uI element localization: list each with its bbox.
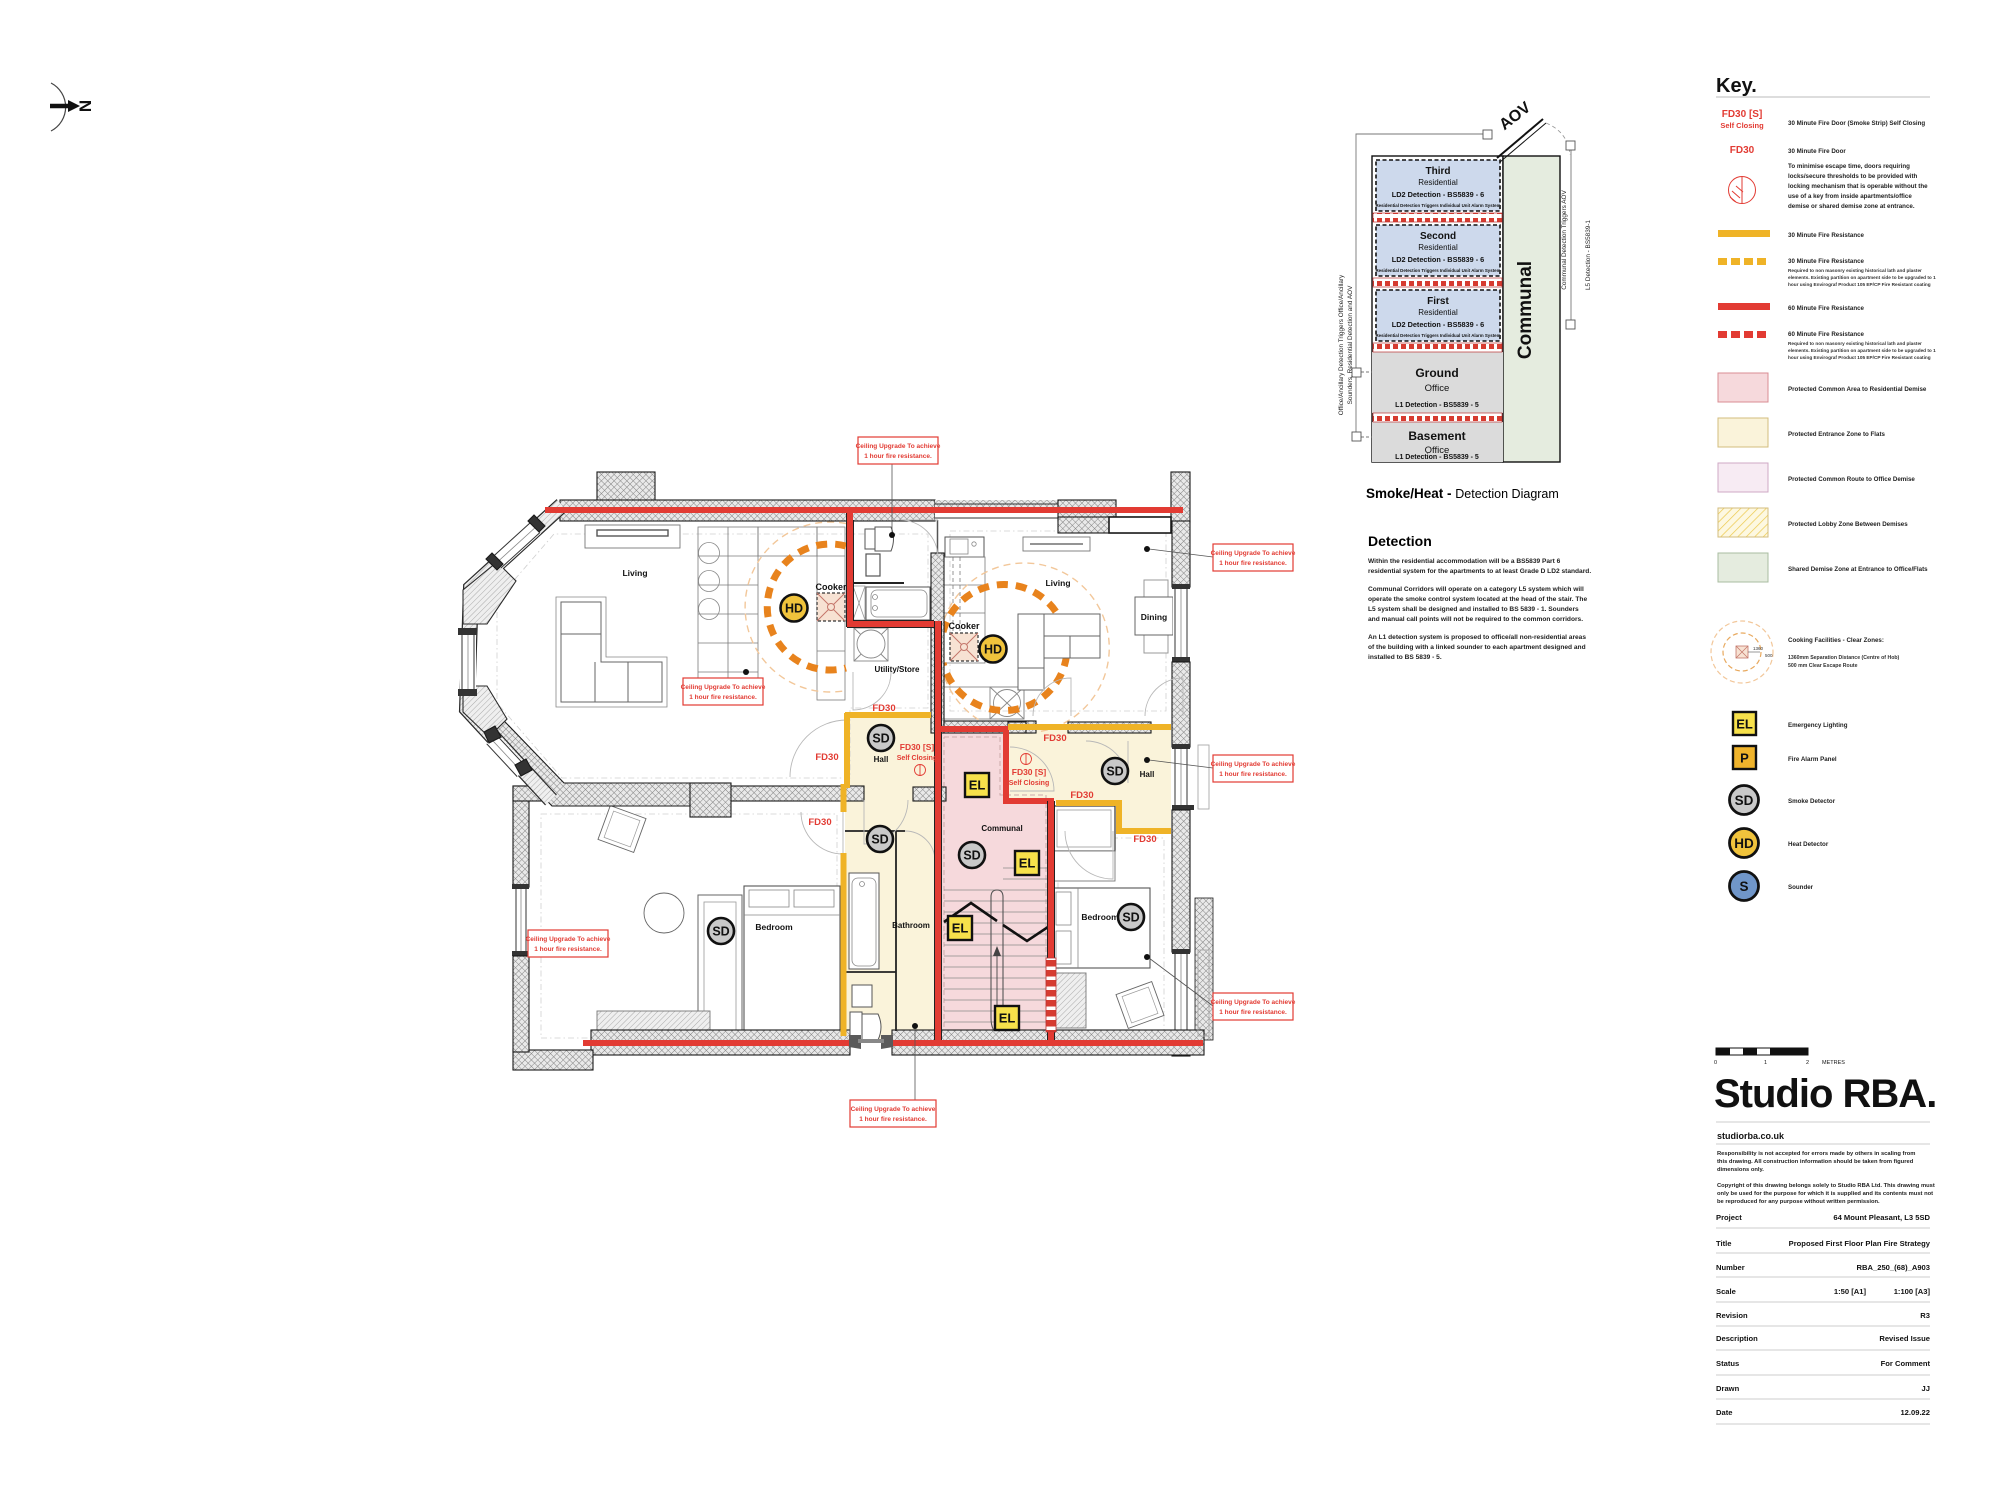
svg-text:Date: Date (1716, 1408, 1732, 1417)
svg-text:Title: Title (1716, 1239, 1731, 1248)
svg-text:1:50 [A1]: 1:50 [A1] (1834, 1287, 1867, 1296)
svg-text:Copyright of this drawing belo: Copyright of this drawing belongs solely… (1717, 1183, 1935, 1189)
svg-text:FD30 [S]: FD30 [S] (1722, 109, 1763, 120)
svg-text:500: 500 (1765, 653, 1773, 658)
svg-text:For Comment: For Comment (1881, 1359, 1931, 1368)
svg-text:Residential: Residential (1418, 178, 1458, 187)
svg-text:Residential Detection Triggers: Residential Detection Triggers Individua… (1376, 268, 1501, 273)
svg-text:Office: Office (1425, 383, 1450, 394)
svg-text:Number: Number (1716, 1263, 1745, 1272)
svg-text:Self Closing: Self Closing (1720, 121, 1764, 130)
svg-text:2: 2 (1806, 1060, 1809, 1066)
svg-text:FD30: FD30 (872, 703, 895, 714)
svg-text:SD: SD (963, 849, 980, 863)
svg-text:only be used for the purpose f: only be used for the purpose for which i… (1717, 1191, 1933, 1197)
svg-text:N: N (76, 100, 95, 112)
svg-text:Sounders, Residential Detectio: Sounders, Residential Detection and AOV (1347, 285, 1354, 404)
svg-text:Ground: Ground (1415, 366, 1458, 380)
svg-text:this drawing. All construction: this drawing. All construction informati… (1717, 1159, 1914, 1165)
svg-text:1 hour fire resistance.: 1 hour fire resistance. (689, 694, 757, 701)
svg-text:L1 Detection - BS5839 - 5: L1 Detection - BS5839 - 5 (1395, 454, 1479, 461)
svg-text:FD30: FD30 (808, 817, 831, 828)
svg-text:LD2 Detection - BS5839 - 6: LD2 Detection - BS5839 - 6 (1392, 320, 1484, 329)
svg-text:Bedroom: Bedroom (755, 922, 793, 932)
svg-text:Communal: Communal (1515, 261, 1536, 359)
svg-text:EL: EL (1736, 717, 1753, 732)
svg-text:Description: Description (1716, 1334, 1758, 1343)
svg-text:HD: HD (1734, 836, 1754, 851)
svg-text:Revision: Revision (1716, 1311, 1748, 1320)
svg-text:64 Mount Pleasant, L3 5SD: 64 Mount Pleasant, L3 5SD (1833, 1213, 1930, 1222)
svg-text:Detection: Detection (1368, 533, 1432, 549)
svg-text:residential system for the apa: residential system for the apartments to… (1368, 568, 1591, 575)
svg-text:Residential Detection Triggers: Residential Detection Triggers Individua… (1376, 333, 1501, 338)
svg-text:EL: EL (952, 921, 969, 936)
svg-text:L5 Detection - BS5839-1: L5 Detection - BS5839-1 (1585, 220, 1592, 290)
svg-text:1: 1 (1764, 1060, 1767, 1066)
svg-text:HD: HD (984, 643, 1002, 657)
svg-text:Self Closing: Self Closing (1009, 780, 1049, 787)
svg-text:FD30: FD30 (1070, 790, 1093, 801)
svg-text:L1 Detection - BS5839 - 5: L1 Detection - BS5839 - 5 (1395, 402, 1479, 409)
svg-text:FD30: FD30 (815, 752, 838, 763)
svg-text:Ceiling Upgrade To achieve: Ceiling Upgrade To achieve (526, 936, 611, 943)
svg-text:Office/Ancillary Detection Tri: Office/Ancillary Detection Triggers Offi… (1338, 274, 1345, 415)
svg-text:HD: HD (785, 602, 803, 616)
svg-text:RBA_250_(68)_A903: RBA_250_(68)_A903 (1857, 1263, 1930, 1272)
svg-text:1 hour fire resistance.: 1 hour fire resistance. (1219, 1009, 1287, 1016)
svg-text:Bedroom: Bedroom (1081, 912, 1119, 922)
svg-text:FD30: FD30 (1730, 145, 1755, 156)
svg-text:Residential Detection Triggers: Residential Detection Triggers Individua… (1376, 203, 1501, 208)
svg-text:Utility/Store: Utility/Store (875, 665, 920, 674)
svg-text:METRES: METRES (1822, 1060, 1845, 1066)
svg-text:L5 system shall be designed an: L5 system shall be designed and installe… (1368, 606, 1579, 613)
svg-text:Ceiling Upgrade To achieve: Ceiling Upgrade To achieve (1211, 999, 1296, 1006)
svg-text:LD2 Detection - BS5839 - 6: LD2 Detection - BS5839 - 6 (1392, 255, 1484, 264)
svg-text:1 hour fire resistance.: 1 hour fire resistance. (864, 453, 932, 460)
svg-text:Key.: Key. (1716, 75, 1757, 97)
svg-text:Shared Demise Zone at Entrance: Shared Demise Zone at Entrance to Office… (1788, 566, 1928, 573)
svg-text:SD: SD (1106, 765, 1123, 779)
svg-text:1 hour fire resistance.: 1 hour fire resistance. (1219, 560, 1287, 567)
svg-text:Studio RBA.: Studio RBA. (1714, 1072, 1936, 1116)
svg-text:Communal Detection Triggers AO: Communal Detection Triggers AOV (1561, 190, 1568, 290)
svg-text:Emergency Lighting: Emergency Lighting (1788, 722, 1848, 729)
svg-text:be reproduced for any purpose: be reproduced for any purpose without wr… (1717, 1199, 1880, 1205)
svg-text:30 Minute Fire Resistance: 30 Minute Fire Resistance (1788, 232, 1865, 239)
svg-text:Living: Living (622, 568, 647, 578)
svg-text:and manual call points will no: and manual call points will not be requi… (1368, 616, 1583, 623)
svg-text:Self Closing: Self Closing (897, 755, 937, 762)
svg-text:Project: Project (1716, 1213, 1742, 1222)
svg-text:FD30: FD30 (1133, 834, 1156, 845)
svg-text:Revised Issue: Revised Issue (1879, 1334, 1930, 1343)
svg-text:Ceiling Upgrade To achieve: Ceiling Upgrade To achieve (851, 1106, 936, 1113)
svg-text:elements. Existing partition o: elements. Existing partition on apartmen… (1788, 275, 1936, 280)
svg-text:Fire Alarm Panel: Fire Alarm Panel (1788, 756, 1837, 763)
svg-text:installed to BS 5839 - 5.: installed to BS 5839 - 5. (1368, 654, 1442, 661)
svg-text:1 hour fire resistance.: 1 hour fire resistance. (1219, 771, 1287, 778)
svg-text:Living: Living (1045, 578, 1070, 588)
svg-text:P: P (1740, 751, 1749, 766)
svg-text:Protected Entrance Zone to Fla: Protected Entrance Zone to Flats (1788, 431, 1886, 438)
svg-text:Residential: Residential (1418, 243, 1458, 252)
svg-text:Ceiling Upgrade To achieve: Ceiling Upgrade To achieve (1211, 761, 1296, 768)
svg-text:Hall: Hall (874, 755, 889, 764)
svg-text:60 Minute Fire Resistance: 60 Minute Fire Resistance (1788, 305, 1865, 312)
svg-text:FD30: FD30 (1043, 733, 1066, 744)
svg-text:Ceiling Upgrade To achieve: Ceiling Upgrade To achieve (1211, 550, 1296, 557)
svg-text:Ceiling Upgrade To achieve: Ceiling Upgrade To achieve (681, 684, 766, 691)
svg-text:LD2 Detection - BS5839 - 6: LD2 Detection - BS5839 - 6 (1392, 190, 1484, 199)
svg-text:S: S (1739, 879, 1748, 894)
svg-text:SD: SD (1735, 793, 1754, 808)
svg-text:Protected Lobby Zone Between D: Protected Lobby Zone Between Demises (1788, 521, 1908, 528)
svg-text:Basement: Basement (1408, 429, 1465, 443)
svg-text:Scale: Scale (1716, 1287, 1736, 1296)
svg-text:30 Minute Fire Resistance: 30 Minute Fire Resistance (1788, 258, 1865, 265)
svg-text:Within the residential accomm: Within the residential accommodation wil… (1368, 558, 1561, 565)
svg-text:60 Minute Fire Resistance: 60 Minute Fire Resistance (1788, 331, 1865, 338)
svg-text:Heat Detector: Heat Detector (1788, 841, 1829, 848)
svg-text:SD: SD (1122, 911, 1139, 925)
svg-text:Communal Corridors will operat: Communal Corridors will operate on a cat… (1368, 586, 1584, 593)
svg-text:Residential: Residential (1418, 308, 1458, 317)
svg-text:SD: SD (712, 925, 729, 939)
svg-text:Responsibility is not accepted: Responsibility is not accepted for error… (1717, 1151, 1915, 1157)
svg-text:JJ: JJ (1922, 1384, 1930, 1393)
svg-text:Dining: Dining (1141, 612, 1167, 622)
svg-text:studiorba.co.uk: studiorba.co.uk (1717, 1131, 1785, 1141)
svg-text:Hall: Hall (1140, 770, 1155, 779)
svg-text:demise or shared demise zone a: demise or shared demise zone at entrance… (1788, 203, 1915, 210)
svg-text:1 hour fire resistance.: 1 hour fire resistance. (859, 1116, 927, 1123)
svg-text:1360: 1360 (1753, 646, 1764, 651)
svg-text:dimensions only.: dimensions only. (1717, 1167, 1764, 1173)
svg-text:Third: Third (1426, 166, 1451, 177)
svg-text:Cooker: Cooker (815, 582, 847, 592)
svg-text:First: First (1427, 296, 1449, 307)
svg-text:Ceiling Upgrade To achieve: Ceiling Upgrade To achieve (856, 443, 941, 450)
svg-text:Required to non masonry existi: Required to non masonry existing histori… (1788, 341, 1922, 346)
svg-text:EL: EL (1019, 856, 1036, 871)
svg-text:operate the smoke control syst: operate the smoke control system located… (1368, 596, 1587, 603)
svg-text:Smoke Detector: Smoke Detector (1788, 798, 1836, 805)
svg-text:Cooker: Cooker (948, 621, 980, 631)
svg-text:hour using Envirograf Product: hour using Envirograf Product 105 EP/CP … (1788, 355, 1931, 360)
svg-text:Proposed First Floor Plan Fire: Proposed First Floor Plan Fire Strategy (1789, 1239, 1931, 1248)
svg-text:Cooking Facilities - Clear Zon: Cooking Facilities - Clear Zones: (1788, 637, 1884, 644)
svg-text:An L1 detection system is prop: An L1 detection system is proposed to of… (1368, 634, 1586, 641)
svg-text:30 Minute Fire Door: 30 Minute Fire Door (1788, 148, 1846, 155)
svg-text:Sounder: Sounder (1788, 884, 1814, 891)
svg-text:R3: R3 (1920, 1311, 1930, 1320)
svg-text:12.09.22: 12.09.22 (1900, 1408, 1930, 1417)
svg-text:hour using Envirograf Product: hour using Envirograf Product 105 EP/CP … (1788, 282, 1931, 287)
svg-text:Protected Common Route to Offi: Protected Common Route to Office Demise (1788, 476, 1915, 483)
svg-text:use of a key from inside apart: use of a key from inside apartments/offi… (1788, 193, 1912, 200)
svg-text:30 Minute Fire Door (Smoke Str: 30 Minute Fire Door (Smoke Strip) Self C… (1788, 120, 1925, 127)
svg-text:EL: EL (999, 1011, 1016, 1026)
svg-text:Second: Second (1420, 231, 1456, 242)
svg-text:0: 0 (1714, 1060, 1717, 1066)
svg-text:SD: SD (872, 732, 889, 746)
svg-text:To minimise escape time, doors: To minimise escape time, doors requiring (1788, 163, 1910, 170)
svg-text:500 mm Clear Escape Route: 500 mm Clear Escape Route (1788, 663, 1858, 669)
svg-text:FD30 [S]: FD30 [S] (1012, 767, 1047, 777)
svg-text:of the building with a linked: of the building with a linked sounder to… (1368, 644, 1586, 651)
svg-text:Drawn: Drawn (1716, 1384, 1740, 1393)
svg-text:elements. Existing partition o: elements. Existing partition on apartmen… (1788, 348, 1936, 353)
svg-text:1360mm Separation Distance (Ce: 1360mm Separation Distance (Centre of Ho… (1788, 655, 1900, 661)
svg-text:EL: EL (969, 778, 986, 793)
svg-text:Bathroom: Bathroom (892, 921, 930, 930)
svg-text:FD30 [S]: FD30 [S] (900, 742, 935, 752)
svg-text:Protected Common Area to Resid: Protected Common Area to Residential Dem… (1788, 386, 1927, 393)
svg-text:locks/secure thresholds to be: locks/secure thresholds to be provided w… (1788, 173, 1917, 180)
svg-text:SD: SD (871, 833, 888, 847)
svg-text:Status: Status (1716, 1359, 1739, 1368)
svg-text:1:100 [A3]: 1:100 [A3] (1894, 1287, 1931, 1296)
svg-text:locking mechanism that is oper: locking mechanism that is operable witho… (1788, 183, 1928, 190)
svg-text:Communal: Communal (981, 824, 1022, 833)
svg-text:Required to non masonry existi: Required to non masonry existing histori… (1788, 268, 1922, 273)
svg-text:1 hour fire resistance.: 1 hour fire resistance. (534, 946, 602, 953)
svg-text:Smoke/Heat - Detection Diagram: Smoke/Heat - Detection Diagram (1366, 486, 1559, 501)
